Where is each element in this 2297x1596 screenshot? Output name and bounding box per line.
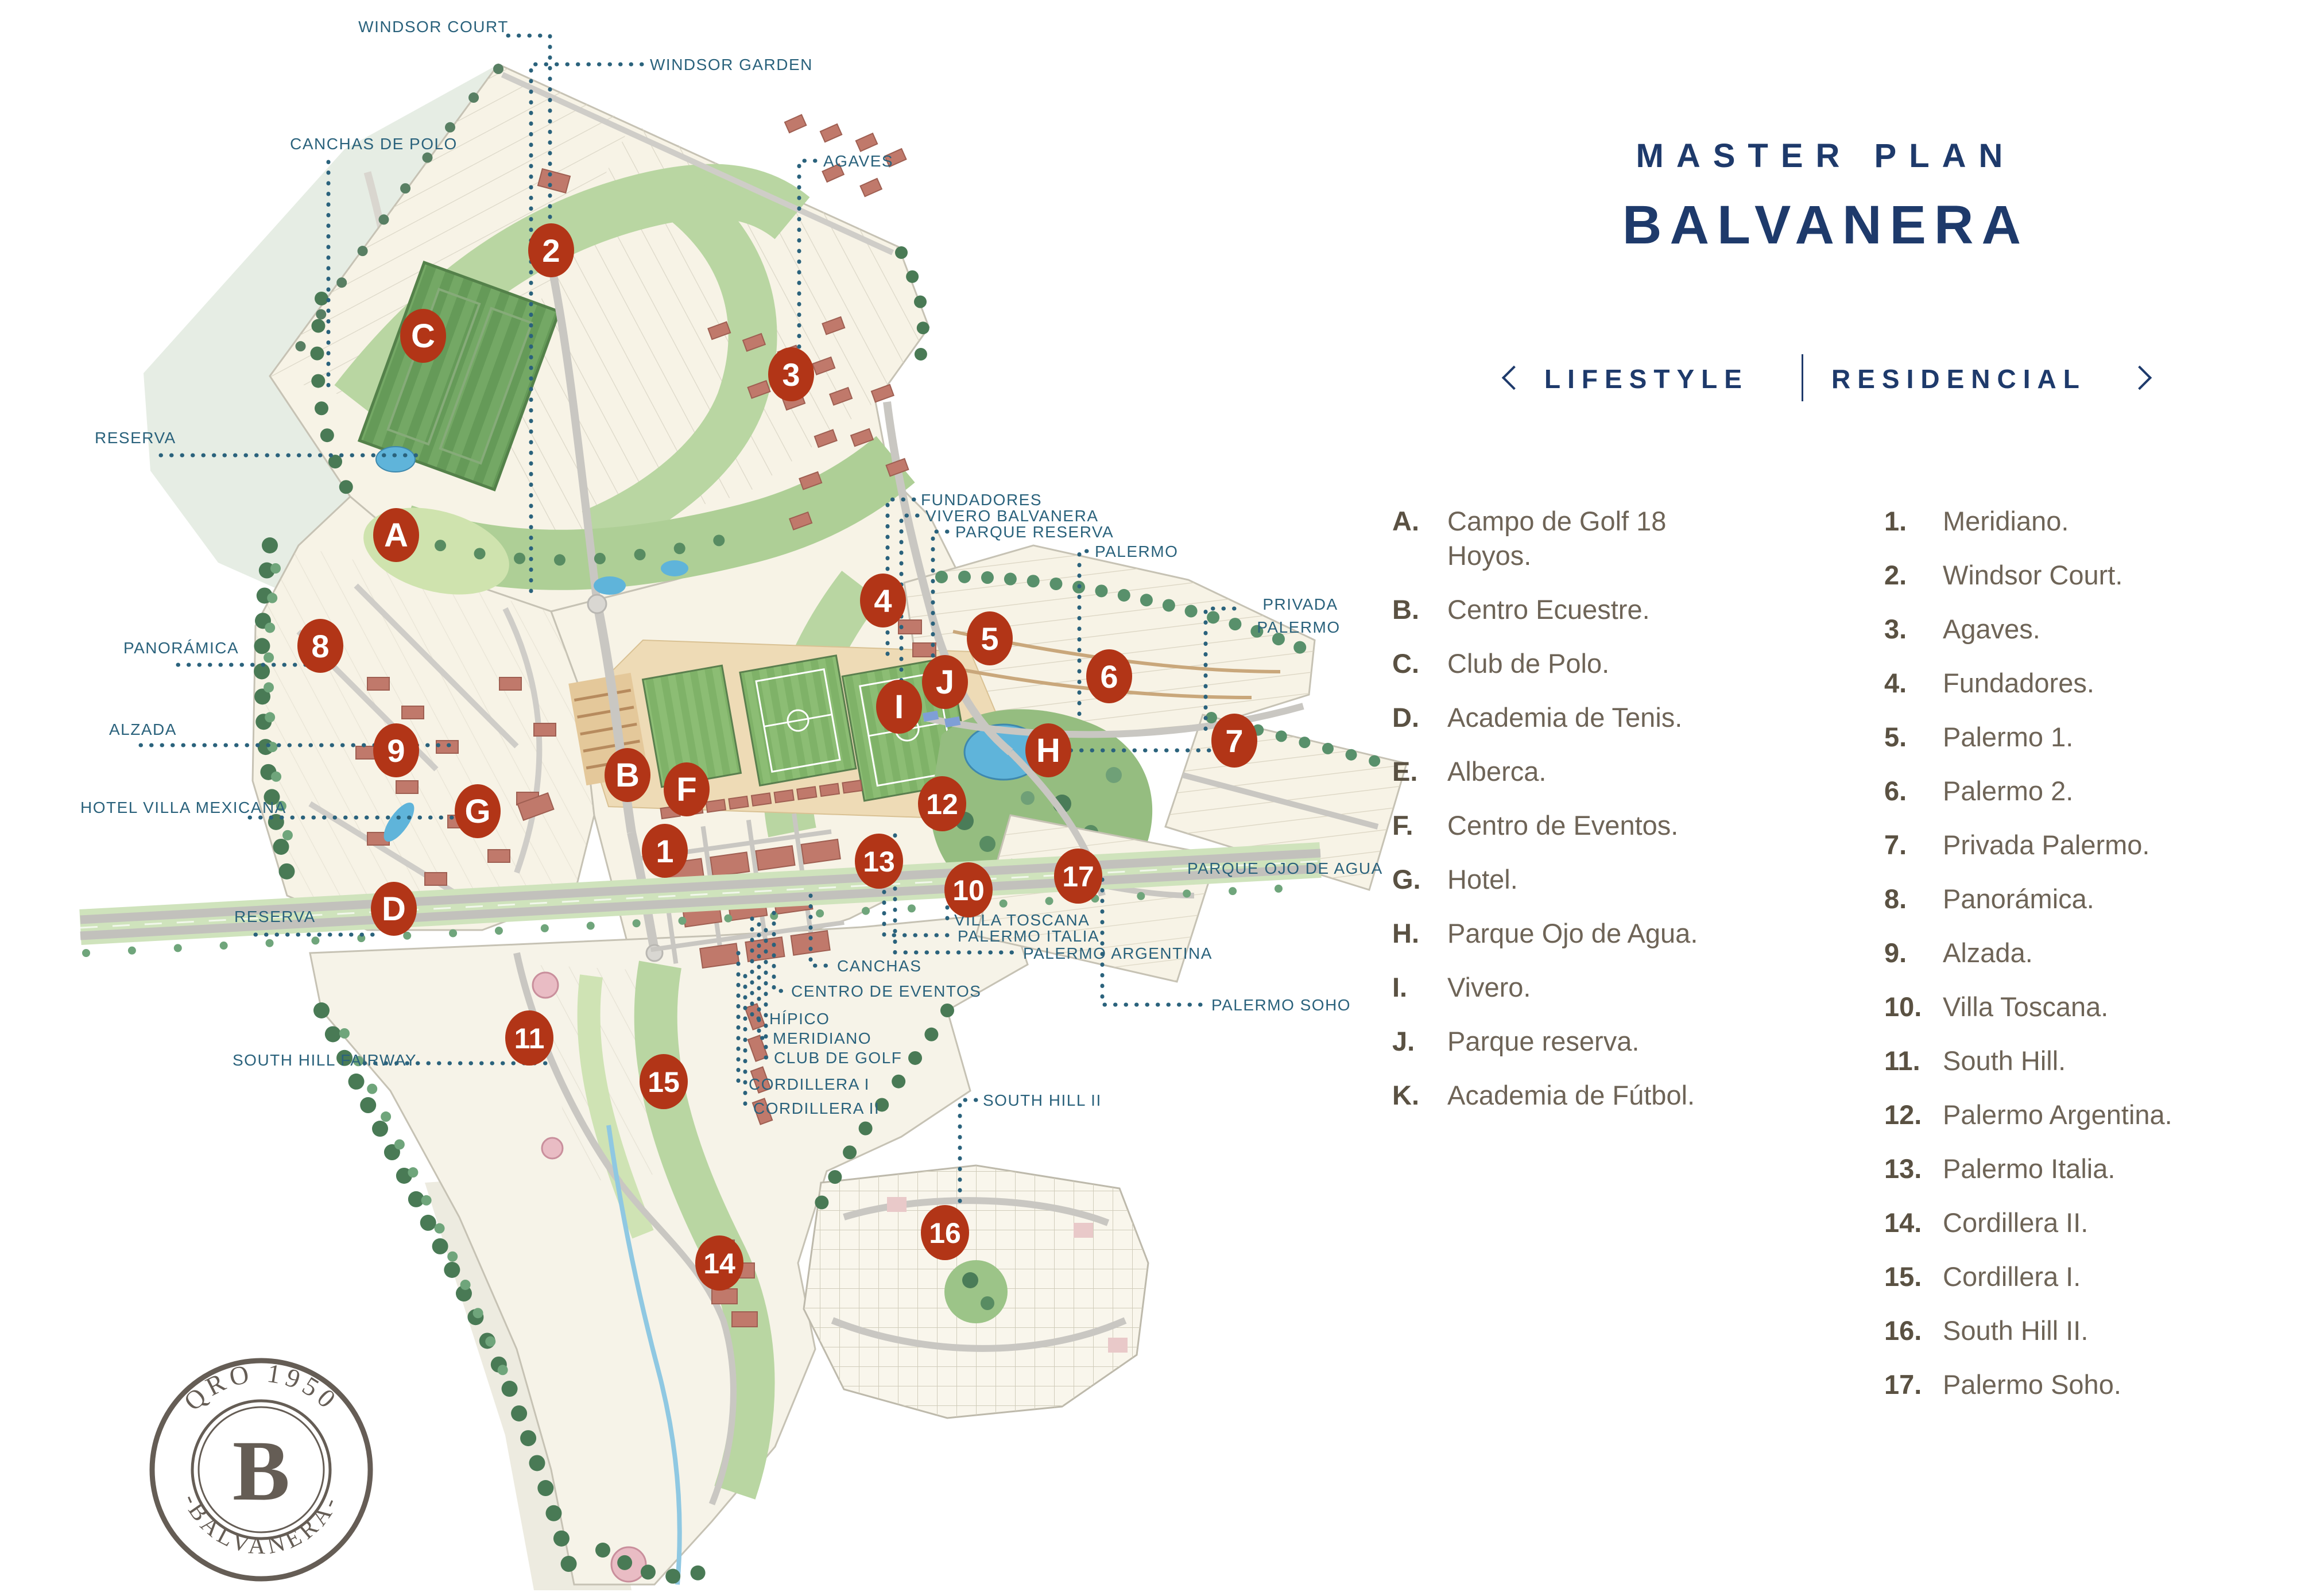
marker-3[interactable]: 3 bbox=[768, 347, 814, 401]
label-hotel-villa-mexicana: HOTEL VILLA MEXICANA bbox=[80, 799, 286, 816]
legend-residences: 1.Meridiano. 2.Windsor Court. 3.Agaves. … bbox=[1884, 504, 2286, 1421]
marker-G[interactable]: G bbox=[455, 784, 501, 838]
master-plan-map: WINDSOR COURT WINDSOR GARDEN CANCHAS DE … bbox=[0, 0, 1447, 1596]
svg-text:14: 14 bbox=[703, 1248, 735, 1280]
legend-key: C. bbox=[1392, 646, 1447, 681]
label-reserva: RESERVA bbox=[95, 429, 176, 447]
marker-A[interactable]: A bbox=[373, 508, 419, 562]
svg-text:15: 15 bbox=[648, 1066, 680, 1098]
marker-14[interactable]: 14 bbox=[695, 1235, 743, 1291]
svg-text:7: 7 bbox=[1225, 723, 1243, 759]
legend-key: 15. bbox=[1884, 1260, 1943, 1294]
legend-label: Vivero. bbox=[1447, 970, 1531, 1005]
svg-text:6: 6 bbox=[1100, 658, 1118, 695]
legend-label: Centro de Eventos. bbox=[1447, 808, 1678, 843]
marker-D[interactable]: D bbox=[371, 882, 417, 936]
next-arrow-icon[interactable] bbox=[2128, 366, 2152, 390]
legend-item-12: 12.Palermo Argentina. bbox=[1884, 1098, 2286, 1132]
legend-label: Alberca. bbox=[1447, 754, 1546, 789]
legend-key: 11. bbox=[1884, 1044, 1943, 1078]
marker-10[interactable]: 10 bbox=[944, 862, 993, 917]
svg-text:8: 8 bbox=[311, 628, 329, 664]
legend-item-1: 1.Meridiano. bbox=[1884, 504, 2286, 539]
legend-facilities: A.Campo de Golf 18 Hoyos. B.Centro Ecues… bbox=[1392, 504, 1748, 1132]
marker-7[interactable]: 7 bbox=[1211, 714, 1257, 768]
legend-key: J. bbox=[1392, 1024, 1447, 1059]
legend-item-17: 17.Palermo Soho. bbox=[1884, 1368, 2286, 1402]
label-cordillera-i: CORDILLERA I bbox=[749, 1075, 870, 1093]
legend-label: Club de Polo. bbox=[1447, 646, 1609, 681]
legend-key: 9. bbox=[1884, 936, 1943, 970]
legend-item-C: C.Club de Polo. bbox=[1392, 646, 1748, 681]
marker-5[interactable]: 5 bbox=[967, 611, 1013, 665]
legend-key: 3. bbox=[1884, 612, 1943, 646]
label-centro-de-eventos: CENTRO DE EVENTOS bbox=[791, 982, 981, 1000]
marker-9[interactable]: 9 bbox=[373, 723, 419, 777]
label-parque-reserva: PARQUE RESERVA bbox=[955, 523, 1114, 541]
legend-key: 14. bbox=[1884, 1206, 1943, 1240]
legend-label: Parque reserva. bbox=[1447, 1024, 1639, 1059]
balvanera-stamp: QRO 1950 -BALVANERA- B bbox=[152, 1358, 370, 1579]
legend-item-F: F.Centro de Eventos. bbox=[1392, 808, 1748, 843]
legend-item-10: 10.Villa Toscana. bbox=[1884, 990, 2286, 1024]
svg-text:10: 10 bbox=[952, 874, 985, 907]
svg-text:J: J bbox=[936, 664, 954, 701]
svg-text:2: 2 bbox=[542, 233, 560, 269]
legend-key: 12. bbox=[1884, 1098, 1943, 1132]
marker-4[interactable]: 4 bbox=[860, 574, 906, 627]
marker-12[interactable]: 12 bbox=[918, 776, 966, 831]
legend-key: 8. bbox=[1884, 882, 1943, 916]
legend-label: Villa Toscana. bbox=[1943, 990, 2108, 1024]
marker-2[interactable]: 2 bbox=[528, 223, 574, 277]
svg-text:3: 3 bbox=[782, 357, 800, 393]
plan-switcher: LIFESTYLE RESIDENCIAL bbox=[1366, 353, 2285, 405]
legend-key: I. bbox=[1392, 970, 1447, 1005]
label-palermo-argentina: PALERMO ARGENTINA bbox=[1023, 944, 1213, 962]
label-privada-palermo-2: PALERMO bbox=[1257, 618, 1340, 636]
label-south-hill-ii: SOUTH HILL II bbox=[983, 1091, 1102, 1109]
label-privada-palermo-1: PRIVADA bbox=[1262, 595, 1338, 613]
nav-divider bbox=[1802, 354, 1803, 401]
marker-15[interactable]: 15 bbox=[640, 1054, 688, 1109]
label-meridiano: MERIDIANO bbox=[773, 1029, 871, 1047]
svg-text:G: G bbox=[464, 793, 490, 830]
stamp-monogram: B bbox=[233, 1423, 290, 1518]
marker-F[interactable]: F bbox=[664, 762, 710, 816]
legend-item-15: 15.Cordillera I. bbox=[1884, 1260, 2286, 1294]
legend-item-5: 5.Palermo 1. bbox=[1884, 720, 2286, 754]
legend-label: Cordillera II. bbox=[1943, 1206, 2088, 1240]
legend-key: 13. bbox=[1884, 1152, 1943, 1186]
label-palermo-soho: PALERMO SOHO bbox=[1211, 996, 1351, 1014]
legend-item-4: 4.Fundadores. bbox=[1884, 666, 2286, 700]
legend-key: 1. bbox=[1884, 504, 1943, 539]
legend-key: 7. bbox=[1884, 828, 1943, 862]
svg-text:9: 9 bbox=[387, 733, 405, 769]
south-hill-ii-pod bbox=[804, 1165, 1148, 1418]
soccer-field bbox=[740, 656, 856, 785]
master-plan-page: WINDSOR COURT WINDSOR GARDEN CANCHAS DE … bbox=[0, 0, 2297, 1596]
legend-item-8: 8.Panorámica. bbox=[1884, 882, 2286, 916]
marker-8[interactable]: 8 bbox=[297, 619, 343, 673]
svg-text:17: 17 bbox=[1062, 861, 1094, 893]
label-alzada: ALZADA bbox=[109, 720, 177, 738]
legend-item-6: 6.Palermo 2. bbox=[1884, 774, 2286, 808]
legend-key: B. bbox=[1392, 592, 1447, 627]
svg-text:B: B bbox=[615, 757, 640, 794]
svg-text:A: A bbox=[384, 517, 408, 554]
label-panoramica: PANORÁMICA bbox=[123, 639, 239, 657]
svg-text:I: I bbox=[894, 688, 904, 726]
marker-17[interactable]: 17 bbox=[1054, 849, 1102, 904]
marker-J[interactable]: J bbox=[922, 655, 968, 709]
legend-label: Fundadores. bbox=[1943, 666, 2094, 700]
legend-item-2: 2.Windsor Court. bbox=[1884, 558, 2286, 592]
svg-text:12: 12 bbox=[926, 788, 958, 820]
page-kicker: MASTER PLAN bbox=[1366, 137, 2285, 175]
marker-H[interactable]: H bbox=[1025, 723, 1071, 777]
legend-label: Hotel. bbox=[1447, 862, 1518, 897]
page-title: BALVANERA bbox=[1366, 194, 2285, 257]
legend-label: Palermo 1. bbox=[1943, 720, 2073, 754]
legend-label: Palermo 2. bbox=[1943, 774, 2073, 808]
legend-label: Cordillera I. bbox=[1943, 1260, 2081, 1294]
marker-6[interactable]: 6 bbox=[1086, 649, 1132, 703]
svg-text:1: 1 bbox=[656, 833, 673, 869]
legend-label: Panorámica. bbox=[1943, 882, 2094, 916]
legend-item-J: J.Parque reserva. bbox=[1392, 1024, 1748, 1059]
svg-text:11: 11 bbox=[514, 1022, 545, 1055]
legend-label: South Hill. bbox=[1943, 1044, 2066, 1078]
legend-item-G: G.Hotel. bbox=[1392, 862, 1748, 897]
info-panel: MASTER PLAN BALVANERA LIFESTYLE RESIDENC… bbox=[1366, 0, 2297, 1596]
label-canchas-de-polo: CANCHAS DE POLO bbox=[290, 135, 458, 153]
marker-16[interactable]: 16 bbox=[921, 1205, 969, 1260]
marker-B[interactable]: B bbox=[605, 748, 650, 802]
legend-item-3: 3.Agaves. bbox=[1884, 612, 2286, 646]
label-windsor-garden: WINDSOR GARDEN bbox=[650, 56, 813, 73]
legend-key: F. bbox=[1392, 808, 1447, 843]
legend-label: Centro Ecuestre. bbox=[1447, 592, 1650, 627]
legend-label: Meridiano. bbox=[1943, 504, 2069, 539]
legend-item-H: H.Parque Ojo de Agua. bbox=[1392, 916, 1748, 951]
legend-item-E: E.Alberca. bbox=[1392, 754, 1748, 789]
legend-item-14: 14.Cordillera II. bbox=[1884, 1206, 2286, 1240]
label-parque-ojo-de-agua: PARQUE OJO DE AGUA bbox=[1187, 859, 1383, 877]
legend-item-16: 16.South Hill II. bbox=[1884, 1314, 2286, 1348]
legend-item-11: 11.South Hill. bbox=[1884, 1044, 2286, 1078]
tab-residencial[interactable]: RESIDENCIAL bbox=[1831, 363, 2086, 394]
tab-lifestyle[interactable]: LIFESTYLE bbox=[1544, 363, 1749, 394]
legend-key: G. bbox=[1392, 862, 1447, 897]
legend-label: Campo de Golf 18 Hoyos. bbox=[1447, 504, 1740, 573]
legend-label: Palermo Soho. bbox=[1943, 1368, 2121, 1402]
legend-key: 4. bbox=[1884, 666, 1943, 700]
marker-I[interactable]: I bbox=[876, 680, 922, 734]
prev-arrow-icon[interactable] bbox=[1502, 366, 1526, 390]
legend-label: Palermo Italia. bbox=[1943, 1152, 2115, 1186]
label-agaves: AGAVES bbox=[823, 152, 893, 170]
legend-label: Agaves. bbox=[1943, 612, 2040, 646]
legend-item-A: A.Campo de Golf 18 Hoyos. bbox=[1392, 504, 1748, 573]
marker-11[interactable]: 11 bbox=[505, 1010, 553, 1066]
legend-key: 16. bbox=[1884, 1314, 1943, 1348]
legend-label: Academia de Tenis. bbox=[1447, 700, 1682, 735]
legend-item-13: 13.Palermo Italia. bbox=[1884, 1152, 2286, 1186]
marker-C[interactable]: C bbox=[400, 309, 446, 363]
label-hipico: HÍPICO bbox=[769, 1010, 830, 1028]
legend-item-K: K.Academia de Fútbol. bbox=[1392, 1078, 1748, 1113]
label-south-hill-fairway: SOUTH HILL FAIRWAY bbox=[233, 1051, 417, 1069]
svg-text:C: C bbox=[411, 317, 435, 355]
label-palermo: PALERMO bbox=[1095, 543, 1178, 560]
legend-key: 2. bbox=[1884, 558, 1943, 592]
legend-item-7: 7.Privada Palermo. bbox=[1884, 828, 2286, 862]
legend-key: H. bbox=[1392, 916, 1447, 951]
legend-item-D: D.Academia de Tenis. bbox=[1392, 700, 1748, 735]
label-cordillera-ii: CORDILLERA II bbox=[753, 1099, 880, 1117]
svg-text:F: F bbox=[676, 771, 696, 808]
legend-label: Palermo Argentina. bbox=[1943, 1098, 2172, 1132]
label-vivero-balvanera: VIVERO BALVANERA bbox=[925, 507, 1099, 525]
legend-key: 6. bbox=[1884, 774, 1943, 808]
legend-item-9: 9.Alzada. bbox=[1884, 936, 2286, 970]
legend-key: K. bbox=[1392, 1078, 1447, 1113]
label-club-de-golf: CLUB DE GOLF bbox=[774, 1049, 902, 1067]
label-fundadores: FUNDADORES bbox=[921, 491, 1042, 509]
legend-item-I: I.Vivero. bbox=[1392, 970, 1748, 1005]
marker-13[interactable]: 13 bbox=[855, 834, 903, 889]
legend-label: Windsor Court. bbox=[1943, 558, 2122, 592]
legend-key: 5. bbox=[1884, 720, 1943, 754]
legend-label: Alzada. bbox=[1943, 936, 2033, 970]
legend-key: D. bbox=[1392, 700, 1447, 735]
svg-text:16: 16 bbox=[929, 1217, 961, 1249]
legend-key: 10. bbox=[1884, 990, 1943, 1024]
marker-1[interactable]: 1 bbox=[642, 824, 688, 878]
legend-label: Privada Palermo. bbox=[1943, 828, 2150, 862]
label-reserva-2: RESERVA bbox=[234, 908, 316, 925]
legend-item-B: B.Centro Ecuestre. bbox=[1392, 592, 1748, 627]
legend-key: 17. bbox=[1884, 1368, 1943, 1402]
legend-key: A. bbox=[1392, 504, 1447, 573]
legend-label: South Hill II. bbox=[1943, 1314, 2088, 1348]
label-windsor-court: WINDSOR COURT bbox=[358, 18, 509, 36]
legend-key: E. bbox=[1392, 754, 1447, 789]
legend-label: Academia de Fútbol. bbox=[1447, 1078, 1695, 1113]
label-canchas: CANCHAS bbox=[837, 957, 921, 975]
svg-text:4: 4 bbox=[874, 583, 892, 619]
svg-text:H: H bbox=[1036, 732, 1060, 769]
label-palermo-italia: PALERMO ITALIA bbox=[958, 927, 1099, 945]
svg-text:13: 13 bbox=[863, 846, 895, 878]
svg-text:5: 5 bbox=[981, 621, 998, 657]
svg-text:D: D bbox=[382, 890, 406, 928]
legend-label: Parque Ojo de Agua. bbox=[1447, 916, 1698, 951]
